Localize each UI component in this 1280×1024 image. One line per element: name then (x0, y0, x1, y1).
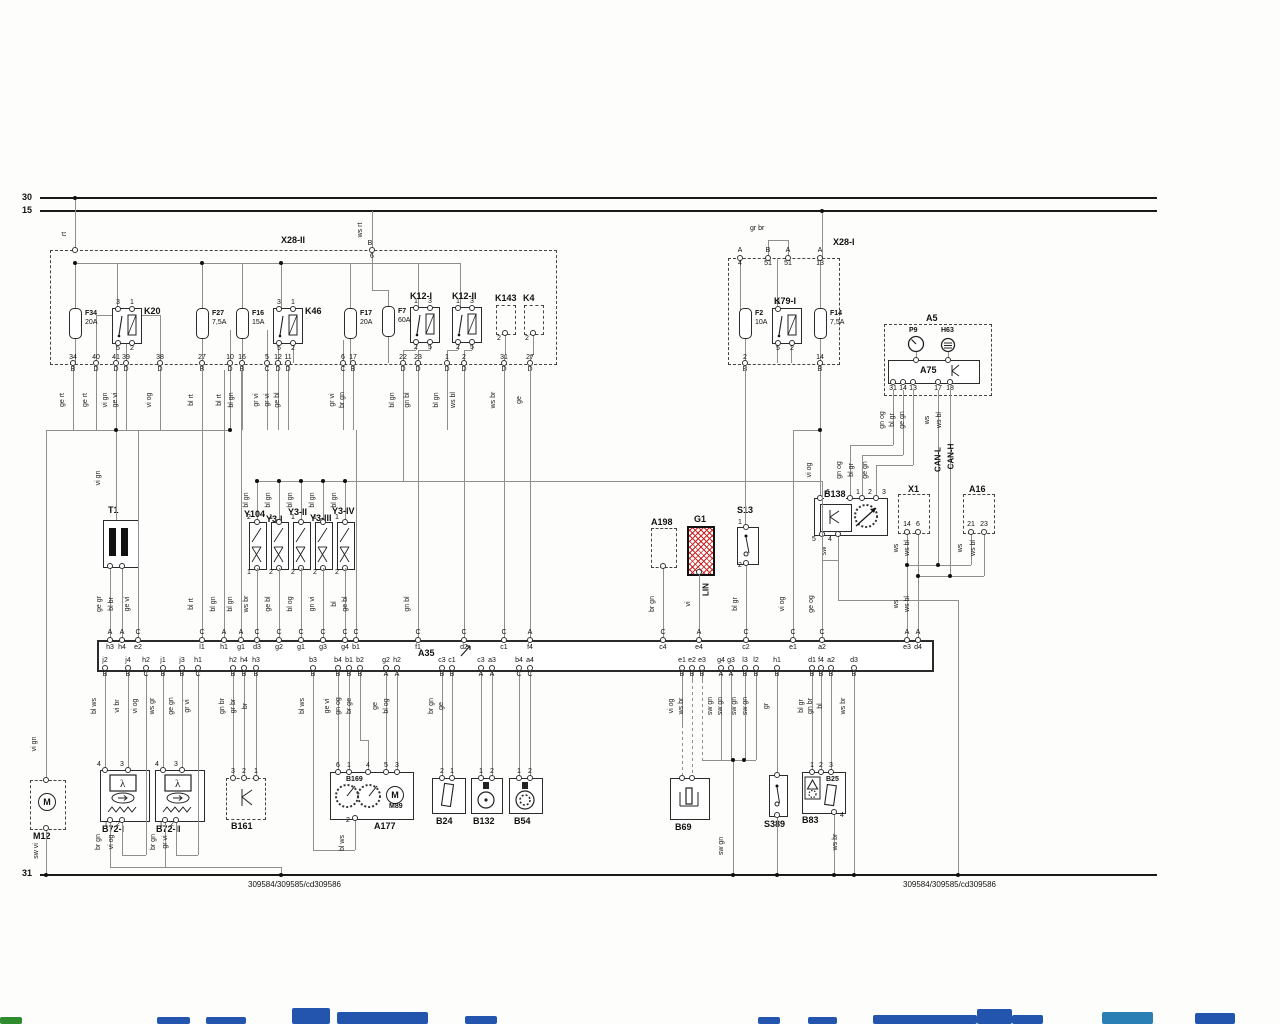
junction-dot (916, 574, 920, 578)
pin-letter: B (760, 247, 776, 255)
pin-letter: B (694, 671, 710, 679)
pin-number: 1 (285, 514, 301, 522)
wire-color-label: vi br (114, 684, 122, 728)
relay-symbol (273, 308, 301, 342)
pin-number: 1 (307, 514, 323, 522)
pin-letter: B (305, 671, 321, 679)
ecu-pin-name: c4 (655, 644, 671, 652)
wire-color-label: gn bl (404, 378, 412, 422)
wire-color-label: br (242, 684, 250, 728)
pin-number: 4 (149, 761, 165, 769)
wire (768, 240, 788, 241)
pin-number: 2 (263, 569, 279, 577)
wire (110, 867, 281, 868)
wire (198, 671, 199, 855)
pin-letter: B (234, 366, 250, 374)
pin-number: 1 (248, 768, 264, 776)
wire-color-label: vi gn (102, 378, 110, 422)
wire (122, 855, 146, 856)
pin-terminal (501, 637, 507, 643)
wire (702, 760, 756, 761)
wire (202, 370, 203, 640)
wire-color-label: vi gn (95, 456, 103, 500)
pin-number: 23 (976, 521, 992, 529)
wire (388, 290, 389, 306)
wire (397, 671, 398, 772)
pin-number: 2 (285, 569, 301, 577)
wire (464, 366, 465, 430)
relay-id-label: K79-I (774, 296, 796, 306)
pin-number: 22 (395, 354, 411, 362)
wire-color-label: ws br (243, 582, 251, 626)
pin-letter: A (114, 629, 130, 637)
wire (984, 532, 985, 576)
wire (464, 430, 465, 640)
wire (958, 600, 959, 875)
wire (850, 445, 893, 446)
pin-letter: C (410, 629, 426, 637)
ecu-pin-name: e4 (691, 644, 707, 652)
relay-symbol (452, 307, 480, 341)
wire (745, 366, 746, 527)
valve-symbol (293, 522, 309, 568)
wire-color-label: gn br (219, 684, 227, 728)
pin-letter: B (345, 366, 361, 374)
fuse-id-label: F16 (252, 310, 264, 317)
wire (126, 366, 127, 430)
wire (353, 366, 354, 430)
ecu-pin-name: a2 (823, 657, 839, 665)
pin-terminal (981, 529, 987, 535)
pin-terminal (199, 637, 205, 643)
ecu-pin-name: d2 (456, 644, 472, 652)
junction-dot (905, 563, 909, 567)
junction-dot (228, 428, 232, 432)
pin-letter: C (190, 671, 206, 679)
pin-terminal (660, 637, 666, 643)
pin-number: 13 (812, 260, 828, 268)
wire (160, 366, 161, 430)
pin-letter: A (691, 629, 707, 637)
taskbar-item-fragment[interactable] (337, 1012, 428, 1024)
wire-color-label: gn vi (309, 582, 317, 626)
relay-id-label: K46 (305, 306, 322, 316)
pin-number: 3 (114, 761, 130, 769)
relay-id-label: K12-I (410, 291, 432, 301)
taskbar-item-fragment[interactable] (977, 1009, 1012, 1024)
pin-number: 3 (876, 489, 892, 497)
pin-number: 1 (241, 569, 257, 577)
junction-dot (73, 196, 77, 200)
pin-number: 2 (307, 569, 323, 577)
pin-number: 51 (780, 260, 796, 268)
pin-number: 1 (329, 514, 345, 522)
pin-terminal (119, 637, 125, 643)
wire (46, 430, 47, 780)
pin-number: 38 (152, 354, 168, 362)
fuse-amp-label: 7,5A (212, 319, 226, 327)
pin-number: 4 (732, 260, 748, 268)
pin-letter: A (522, 629, 538, 637)
pin-terminal (107, 637, 113, 643)
wire (46, 828, 47, 875)
wire (242, 366, 243, 430)
wire-dashed (702, 680, 703, 760)
wire-color-label: ge (438, 684, 446, 728)
ecu-pin-name: j1 (155, 657, 171, 665)
pin-letter: C (785, 629, 801, 637)
pin-terminal (743, 637, 749, 643)
wire-color-label: gn og (335, 684, 343, 728)
pin-number: 1 (732, 519, 748, 527)
wire-dashed (682, 725, 683, 778)
pin-letter: D (456, 366, 472, 374)
pin-letter: A (732, 247, 748, 255)
pin-number: 40 (88, 354, 104, 362)
wire-color-label: ge gr (96, 582, 104, 626)
wire (256, 671, 257, 778)
pin-terminal (945, 357, 951, 363)
pin-terminal (461, 637, 467, 643)
pin-number: 39 (118, 354, 134, 362)
wire-color-label: sw vi (33, 829, 41, 873)
wire (504, 370, 505, 640)
pin-letter: C (496, 629, 512, 637)
pin-letter: B (155, 671, 171, 679)
wire (854, 671, 855, 875)
pin-letter: D (280, 366, 296, 374)
pin-terminal (415, 637, 421, 643)
wire (793, 430, 794, 640)
wire (388, 336, 389, 363)
lin-label: LIN (702, 568, 711, 612)
junction-dot (956, 873, 960, 877)
wire-color-label: ws bl (936, 398, 944, 442)
wire-color-label: ge gn (899, 398, 907, 442)
wire (777, 671, 778, 775)
pin-letter: B (444, 671, 460, 679)
pin-number: 3 (168, 761, 184, 769)
wire (96, 366, 97, 430)
junction-dot (731, 873, 735, 877)
wire-color-label: gr br (230, 684, 238, 728)
pin-letter: A (233, 629, 249, 637)
wire-color-label: ws (893, 526, 901, 570)
pin-terminal (254, 637, 260, 643)
taskbar-item-fragment[interactable] (157, 1017, 190, 1024)
wire-color-label: ge og (808, 582, 816, 626)
junction-dot (936, 563, 940, 567)
ecu-pin-name: a2 (814, 644, 830, 652)
ecu-pin-name: l1 (194, 644, 210, 652)
wire-color-label: ws br (490, 378, 498, 422)
pin-number: 16 (234, 354, 250, 362)
ecu-pin-name: f4 (522, 644, 538, 652)
pin-letter: C (194, 629, 210, 637)
wire-color-label: ws gr (149, 684, 157, 728)
pin-letter: B (362, 240, 378, 248)
pin-letter: C (130, 629, 146, 637)
taskbar-item-fragment[interactable] (206, 1017, 246, 1024)
junction-dot (44, 873, 48, 877)
ecu-pin-name: a3 (484, 657, 500, 665)
pin-letter: B (823, 671, 839, 679)
fuse-F17 (344, 308, 357, 339)
fuse-F2 (739, 308, 752, 339)
junction-dot (299, 479, 303, 483)
taskbar-item-fragment[interactable] (292, 1008, 330, 1024)
fuse-F7 (382, 306, 395, 337)
wire-color-label: vi og (779, 582, 787, 626)
wire-color-label: bl gr (889, 398, 897, 442)
taskbar-item-fragment[interactable] (808, 1017, 837, 1024)
pin-terminal (238, 637, 244, 643)
pin-number: 2 (329, 569, 345, 577)
wire (288, 366, 289, 430)
ecu-pin-name: b3 (305, 657, 321, 665)
pin-number: 2 (110, 821, 126, 829)
pin-terminal (774, 812, 780, 818)
taskbar-item-fragment[interactable] (1012, 1015, 1043, 1024)
ecu-pin-name: g3 (315, 644, 331, 652)
ecu-pin-name: g2 (271, 644, 287, 652)
wire (202, 263, 203, 310)
wire (372, 290, 388, 291)
wire-color-label: ws (957, 526, 965, 570)
pin-terminal (353, 637, 359, 643)
pin-number: 2 (784, 345, 800, 353)
taskbar-item-fragment[interactable] (1102, 1012, 1153, 1024)
junction-dot (818, 428, 822, 432)
pin-number: 3 (823, 762, 839, 770)
pin-letter: A (216, 629, 232, 637)
pin-terminal (320, 637, 326, 643)
pin-letter: D (395, 366, 411, 374)
wire (182, 671, 183, 770)
pin-number: 1 (341, 762, 357, 770)
wire-color-label: bl rt (188, 582, 196, 626)
pin-terminal (790, 637, 796, 643)
wire (116, 430, 117, 520)
pin-number: 5 (464, 344, 480, 352)
fuse-id-label: F14 (830, 310, 842, 317)
ecu-pin-name: j4 (120, 657, 136, 665)
fuse-id-label: F34 (85, 310, 97, 317)
ecu-pin-name: h1 (190, 657, 206, 665)
wire-color-label: bl ws (299, 684, 307, 728)
taskbar-item-fragment[interactable] (873, 1015, 977, 1024)
junction-dot (73, 261, 77, 265)
taskbar-item-fragment[interactable] (758, 1017, 780, 1024)
pin-number: 2 (737, 354, 753, 362)
fuse-id-label: F2 (755, 310, 763, 317)
relay-id-label: K4 (523, 293, 535, 303)
pin-number: 17 (345, 354, 361, 362)
wire-color-label: vi og (668, 684, 676, 728)
junction-dot (343, 479, 347, 483)
wire-color-label: ge vi (112, 378, 120, 422)
wire (820, 366, 821, 498)
wire (105, 671, 106, 770)
wire (913, 390, 914, 465)
wire (876, 465, 913, 466)
ecu-pin-name: h2 (389, 657, 405, 665)
wire (360, 671, 361, 740)
taskbar-item-fragment[interactable] (0, 1017, 22, 1024)
taskbar-item-fragment[interactable] (1195, 1013, 1235, 1024)
pin-letter: C (315, 629, 331, 637)
pin-number: 5 (806, 536, 822, 544)
pin-number: 2 (519, 335, 535, 343)
wire (418, 430, 419, 640)
wire-color-label: bl gn (210, 582, 218, 626)
junction-dot (832, 873, 836, 877)
wire-color-label: bl (817, 684, 825, 728)
pin-terminal (696, 569, 702, 575)
fuse-F14 (814, 308, 827, 339)
wire (356, 430, 357, 640)
relay-id-label: K20 (144, 306, 161, 316)
junction-dot (114, 428, 118, 432)
wire (242, 263, 243, 310)
ecu-pin-name: e2 (130, 644, 146, 652)
pin-letter: A (780, 247, 796, 255)
ecu-pin-name: e3 (694, 657, 710, 665)
wire-color-label: vi (685, 582, 693, 626)
wire (403, 430, 404, 481)
wire-color-label: bl gr (732, 582, 740, 626)
wire (918, 532, 919, 576)
wire (224, 370, 225, 640)
junction-dot (731, 758, 735, 762)
wire (163, 671, 164, 770)
wire (418, 366, 419, 430)
wire-color-label: bl br (108, 582, 116, 626)
wire (73, 366, 74, 430)
pin-number: 2 (164, 821, 180, 829)
fuse-F27 (196, 308, 209, 339)
fuse-id-label: F27 (212, 310, 224, 317)
pin-letter: B (748, 671, 764, 679)
junction-dot (852, 873, 856, 877)
wire-color-label: sw gn (717, 684, 725, 728)
pin-letter: C (293, 629, 309, 637)
wire-color-label: bl (331, 582, 339, 626)
valve-symbol (271, 522, 287, 568)
pin-terminal (819, 637, 825, 643)
pin-number: 2 (732, 562, 748, 570)
pin-number: 27 (194, 354, 210, 362)
junction-dot (948, 574, 952, 578)
wire (360, 740, 368, 741)
pin-letter: C (814, 629, 830, 637)
wire-color-label: bl gn (228, 378, 236, 422)
pin-number: 5 (422, 344, 438, 352)
valve-symbol (337, 522, 353, 568)
pin-terminal (689, 775, 695, 781)
pin-letter: B (248, 671, 264, 679)
pin-letter: D (410, 366, 426, 374)
pin-letter: C (138, 671, 154, 679)
wire-color-label: ws (893, 582, 901, 626)
ecu-pin-name: j3 (174, 657, 190, 665)
ecu-pin-name: f1 (410, 644, 426, 652)
fuse-amp-label: 20A (85, 319, 97, 327)
pin-number: 31 (496, 354, 512, 362)
wire-color-label: bl gr (798, 684, 806, 728)
can-l-label: CAN-L (934, 438, 943, 482)
wire (350, 263, 351, 310)
wire (176, 855, 198, 856)
wire (255, 481, 822, 482)
wire (96, 315, 113, 316)
ecu-pin-name: d4 (910, 644, 926, 652)
pin-letter: B (769, 671, 785, 679)
pin-number: 6 (364, 253, 380, 261)
wire-color-label: ge rt (59, 378, 67, 422)
wire-color-label: rt (61, 212, 69, 256)
pin-letter: D (439, 366, 455, 374)
wire (313, 671, 314, 850)
wire-color-label: ge vi (124, 582, 132, 626)
wire-layer: 34Bge rt40Dge rt41Dvi gn39Dge vi38Dvi og… (0, 0, 1280, 1024)
pin-letter: C (249, 629, 265, 637)
pin-number: 2 (456, 354, 472, 362)
wire-color-label: gr vi (184, 684, 192, 728)
wire (128, 671, 129, 770)
wiring-diagram-page: 30 15 31 X28-II X28-I A5 P9 H63 A75 A35 … (0, 0, 1280, 1024)
fuse-id-label: F7 (398, 308, 406, 315)
wire-color-label: ge gn (862, 448, 870, 492)
pin-number: 51 (760, 260, 776, 268)
ecu-pin-name: h1 (769, 657, 785, 665)
pin-letter: A (389, 671, 405, 679)
wire (838, 560, 839, 600)
wire-color-label: ge bl (274, 378, 282, 422)
pin-number: 27 (522, 354, 538, 362)
pin-terminal (660, 563, 666, 569)
relay-symbol (410, 307, 438, 341)
ecu-pin-name: g1 (233, 644, 249, 652)
taskbar-item-fragment[interactable] (465, 1016, 497, 1024)
wire-color-label: ws bl (904, 582, 912, 626)
pin-number: 13 (905, 385, 921, 393)
wire (822, 481, 823, 640)
wire-color-label: sw gn (731, 684, 739, 728)
pin-letter: B (352, 671, 368, 679)
pin-number: 2 (124, 345, 140, 353)
pin-number: 34 (65, 354, 81, 362)
ecu-pin-name: c1 (496, 644, 512, 652)
wire-color-label: ws (924, 398, 932, 442)
pin-letter: B (846, 671, 862, 679)
fuse-amp-label: 60A (398, 317, 410, 325)
pin-number: 1 (439, 354, 455, 362)
pin-letter: C (522, 671, 538, 679)
pin-number: 4 (360, 762, 376, 770)
junction-dot (277, 479, 281, 483)
wire-color-label: bl rt (188, 378, 196, 422)
junction-dot (279, 261, 283, 265)
pin-letter: A (812, 247, 828, 255)
fuse-amp-label: 10A (755, 319, 767, 327)
pin-number: 2 (285, 345, 301, 353)
pin-letter: C (738, 629, 754, 637)
wire-color-label: ws br (832, 820, 840, 864)
junction-dot (200, 261, 204, 265)
wire-dashed (692, 680, 693, 778)
pin-terminal (915, 529, 921, 535)
